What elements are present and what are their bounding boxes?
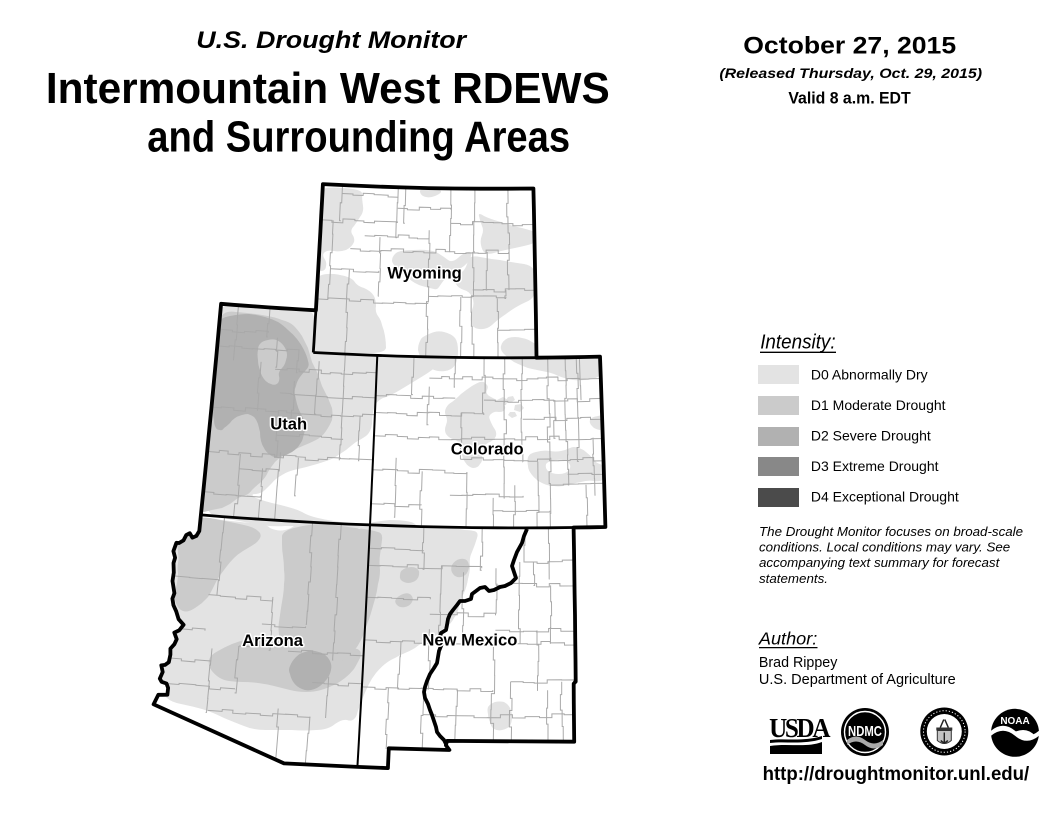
svg-text:Brad Rippey: Brad Rippey — [759, 655, 838, 671]
svg-text:D2 Severe Drought: D2 Severe Drought — [811, 428, 931, 444]
svg-text:October 27, 2015: October 27, 2015 — [743, 33, 956, 59]
svg-text:and Surrounding Areas: and Surrounding Areas — [147, 112, 570, 161]
svg-text:Author:: Author: — [758, 629, 817, 649]
svg-text:Intermountain West RDEWS: Intermountain West RDEWS — [46, 65, 610, 114]
svg-text:D0 Abnormally Dry: D0 Abnormally Dry — [811, 367, 928, 383]
svg-text:The Drought Monitor focuses on: The Drought Monitor focuses on broad-sca… — [759, 524, 1023, 539]
svg-text:statements.: statements. — [759, 571, 828, 586]
svg-text:U.S. Department of Agriculture: U.S. Department of Agriculture — [759, 672, 956, 688]
svg-text:Intensity:: Intensity: — [760, 331, 835, 354]
svg-text:(Released Thursday, Oct. 29, 2: (Released Thursday, Oct. 29, 2015) — [719, 66, 982, 82]
svg-text:conditions. Local conditions m: conditions. Local conditions may vary. S… — [759, 540, 1010, 555]
svg-text:Valid 8 a.m. EDT: Valid 8 a.m. EDT — [788, 89, 910, 108]
svg-text:accompanying text summary for: accompanying text summary for forecast — [759, 555, 1001, 570]
svg-text:http://droughtmonitor.unl.edu/: http://droughtmonitor.unl.edu/ — [763, 763, 1030, 784]
svg-text:D3 Extreme Drought: D3 Extreme Drought — [811, 458, 939, 474]
svg-text:D4 Exceptional Drought: D4 Exceptional Drought — [811, 489, 959, 505]
svg-text:D1 Moderate Drought: D1 Moderate Drought — [811, 397, 946, 413]
svg-text:U.S. Drought Monitor: U.S. Drought Monitor — [196, 27, 468, 53]
